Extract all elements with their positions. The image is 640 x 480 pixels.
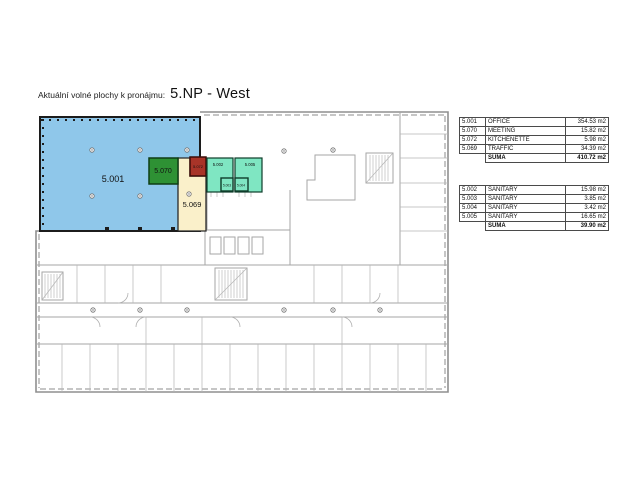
- room-area: 3.42 m2: [566, 204, 609, 213]
- floorplan-drawing: 5.001 5.070 5.072 5.069 5.002 5.005 5.00…: [32, 106, 452, 398]
- suma-value: 39.90 m2: [566, 222, 609, 231]
- room-code: 5.004: [460, 204, 486, 213]
- stairwell-right: [366, 153, 393, 183]
- room-label-5002: 5.002: [213, 162, 224, 167]
- room-name: SANITARY: [486, 213, 566, 222]
- stairwell-center: [215, 268, 247, 300]
- room-name: KITCHENETTE: [486, 136, 566, 145]
- title-floor: 5.NP - West: [170, 86, 250, 102]
- door-arcs: [90, 293, 380, 327]
- room-code: 5.070: [460, 127, 486, 136]
- highlighted-rooms: 5.001 5.070 5.072 5.069 5.002 5.005 5.00…: [40, 117, 262, 231]
- room-area: 16.65 m2: [566, 213, 609, 222]
- room-area: 15.98 m2: [566, 186, 609, 195]
- wall-marker: [171, 227, 175, 231]
- floorplan-page: Aktuální volné plochy k pronájmu: 5.NP -…: [0, 0, 640, 480]
- table-row: 5.069 TRAFFIC 34.39 m2: [460, 145, 609, 154]
- room-code: 5.001: [460, 118, 486, 127]
- room-area: 354.53 m2: [566, 118, 609, 127]
- stairwell-left: [42, 272, 63, 300]
- table-row: 5.004 SANITARY 3.42 m2: [460, 204, 609, 213]
- wall-marker: [138, 227, 142, 231]
- room-area: 5.98 m2: [566, 136, 609, 145]
- table-row: 5.001 OFFICE 354.53 m2: [460, 118, 609, 127]
- office-areas-table: 5.001 OFFICE 354.53 m2 5.070 MEETING 15.…: [459, 117, 609, 163]
- room-name: TRAFFIC: [486, 145, 566, 154]
- empty-cell: [460, 222, 486, 231]
- table-row: 5.003 SANITARY 3.85 m2: [460, 195, 609, 204]
- room-area: 15.82 m2: [566, 127, 609, 136]
- room-code: 5.072: [460, 136, 486, 145]
- room-code: 5.002: [460, 186, 486, 195]
- suma-row: SUMA 39.90 m2: [460, 222, 609, 231]
- table-row: 5.072 KITCHENETTE 5.98 m2: [460, 136, 609, 145]
- title-label: Aktuální volné plochy k pronájmu:: [38, 90, 165, 100]
- room-name: SANITARY: [486, 204, 566, 213]
- room-label-5069: 5.069: [183, 200, 202, 209]
- table-row: 5.005 SANITARY 16.65 m2: [460, 213, 609, 222]
- room-label-5003: 5.003: [223, 184, 231, 188]
- table-row: 5.002 SANITARY 15.98 m2: [460, 186, 609, 195]
- room-area: 3.85 m2: [566, 195, 609, 204]
- suma-label: SUMA: [486, 222, 566, 231]
- room-name: MEETING: [486, 127, 566, 136]
- room-name: SANITARY: [486, 195, 566, 204]
- room-label-5004: 5.004: [237, 184, 245, 188]
- suma-label: SUMA: [486, 154, 566, 163]
- room-label-5070: 5.070: [154, 168, 172, 175]
- room-code: 5.005: [460, 213, 486, 222]
- room-code: 5.069: [460, 145, 486, 154]
- table-row: 5.070 MEETING 15.82 m2: [460, 127, 609, 136]
- room-label-5005: 5.005: [245, 162, 256, 167]
- suma-value: 410.72 m2: [566, 154, 609, 163]
- room-name: SANITARY: [486, 186, 566, 195]
- empty-cell: [460, 154, 486, 163]
- room-code: 5.003: [460, 195, 486, 204]
- suma-row: SUMA 410.72 m2: [460, 154, 609, 163]
- wall-marker: [105, 227, 109, 231]
- room-label-5072: 5.072: [193, 164, 204, 169]
- room-area: 34.39 m2: [566, 145, 609, 154]
- room-label-5001: 5.001: [102, 174, 125, 184]
- sanitary-areas-table: 5.002 SANITARY 15.98 m2 5.003 SANITARY 3…: [459, 185, 609, 231]
- page-title: Aktuální volné plochy k pronájmu: 5.NP -…: [38, 86, 250, 102]
- room-name: OFFICE: [486, 118, 566, 127]
